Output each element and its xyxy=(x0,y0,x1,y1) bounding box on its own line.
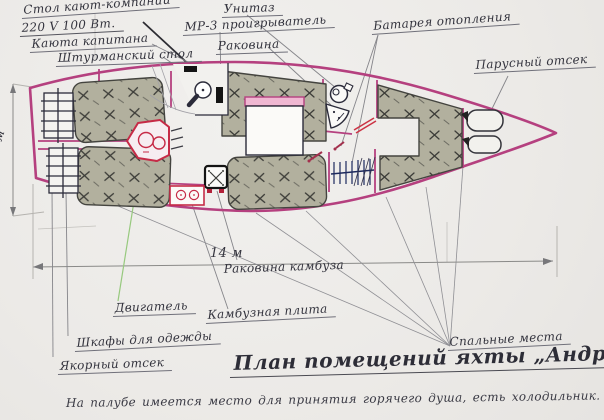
callout-sink: Раковина xyxy=(215,37,287,55)
length-dimension-label: 14 м xyxy=(210,246,243,261)
head-door xyxy=(354,118,376,133)
shaft-hatch xyxy=(171,128,183,149)
saloon-table xyxy=(245,97,304,155)
berth-aft-port xyxy=(227,154,327,209)
galley-sink-icon xyxy=(205,166,227,193)
scanned-yacht-plan: Стол кают-компании 220 V 100 Вт. Каюта к… xyxy=(0,0,604,420)
sail-bags-icon xyxy=(461,110,503,153)
washbasin-icon xyxy=(326,104,349,128)
callout-engine: Двигатель xyxy=(112,298,196,317)
radiator-icon xyxy=(331,157,375,186)
mp3-player-icon xyxy=(216,87,223,103)
dimension-beam xyxy=(10,84,44,216)
berth-stern-u xyxy=(378,85,462,190)
companionway-step xyxy=(184,66,197,72)
galley-stove-icon xyxy=(170,186,204,205)
